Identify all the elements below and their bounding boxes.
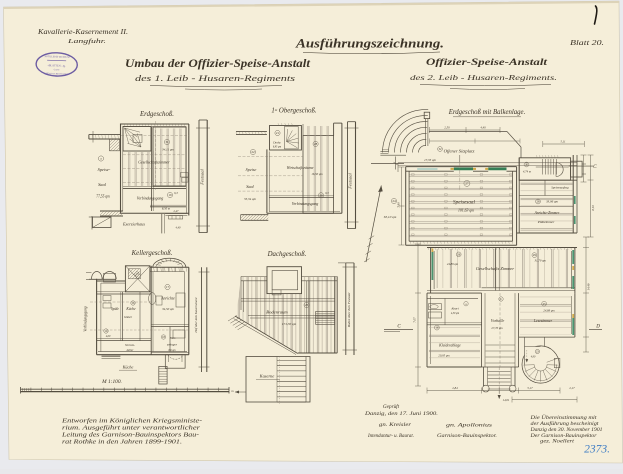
svg-text:Vorrats-: Vorrats- (125, 343, 135, 347)
svg-text:19: 19 (168, 193, 172, 197)
svg-text:20: 20 (319, 193, 323, 197)
svg-text:Blatt 20.: Blatt 20. (570, 38, 604, 47)
svg-text:Umbau der Offizier-Speise-Anst: Umbau der Offizier-Speise-Anstalt (125, 58, 311, 70)
svg-text:31: 31 (165, 140, 169, 144)
svg-text:Gesellschafts Zimmer: Gesellschafts Zimmer (476, 266, 514, 271)
svg-text:Verbindungsgang: Verbindungsgang (84, 306, 88, 331)
svg-text:keller: keller (127, 348, 135, 352)
svg-text:Intendantur- u. Baurat.: Intendantur- u. Baurat. (367, 434, 414, 439)
svg-text:rium. Ausgeführt unter verant: rium. Ausgeführt unter verantwortlicher (62, 425, 201, 432)
svg-text:des 2. Leib - Husaren-Regime: des 2. Leib - Husaren-Regiments. (410, 73, 557, 82)
svg-text:26: 26 (457, 253, 461, 257)
svg-text:Danzig, den 17. Juni 1900.: Danzig, den 17. Juni 1900. (364, 411, 438, 417)
svg-text:•BLATTEN– Jg.: •BLATTEN– Jg. (48, 64, 66, 68)
svg-text:Anrichte: Anrichte (160, 296, 175, 301)
svg-text:Hof über dem Kasernement: Hof über dem Kasernement (194, 297, 198, 333)
svg-text:27: 27 (465, 182, 469, 186)
svg-text:21: 21 (276, 131, 280, 135)
svg-text:D: D (595, 325, 600, 330)
svg-text:28: 28 (537, 200, 541, 204)
svg-text:1te Obergeschoß.: 1te Obergeschoß. (271, 108, 317, 115)
svg-text:Festsaal: Festsaal (348, 172, 353, 189)
svg-text:32: 32 (439, 147, 443, 151)
svg-text:Exerzierhaus: Exerzierhaus (122, 222, 145, 227)
svg-text:des 1. Leib - Husaren-Regime: des 1. Leib - Husaren-Regiments (135, 73, 296, 83)
svg-text:6,3: 6,3 (174, 192, 178, 195)
svg-text:29: 29 (533, 253, 537, 257)
svg-text:Dachgeschoß.: Dachgeschoß. (267, 251, 307, 258)
svg-text:2,47: 2,47 (174, 210, 179, 213)
svg-text:Kaserne: Kaserne (259, 374, 275, 379)
svg-text:Saal: Saal (246, 184, 254, 189)
svg-text:Erdgeschoß.: Erdgeschoß. (139, 111, 174, 118)
svg-text:Bodenraum: Bodenraum (266, 310, 288, 315)
svg-text:Spüle: Spüle (111, 307, 119, 311)
svg-text:25: 25 (543, 302, 547, 306)
svg-text:Festsaal: Festsaal (199, 168, 204, 185)
svg-text:Gläser: Gläser (124, 315, 133, 319)
svg-text:Erdgeschoß mit Balkenlage.: Erdgeschoß mit Balkenlage. (448, 109, 526, 116)
svg-text:Speise-: Speise- (98, 167, 111, 172)
svg-text:Offizier-Speise-Anstalt: Offizier-Speise-Anstalt (426, 57, 547, 68)
svg-text:Die Übereinstimmung mit: Die Übereinstimmung mit (529, 413, 597, 421)
svg-text:Geprüft: Geprüft (383, 403, 400, 410)
svg-text:22: 22 (251, 150, 255, 154)
svg-text:Kleiderablage: Kleiderablage (438, 344, 461, 348)
svg-text:28: 28 (314, 142, 318, 146)
svg-text:Garnison-Bauinspektor.: Garnison-Bauinspektor. (437, 434, 497, 439)
svg-text:M 1:100.: M 1:100. (101, 379, 122, 385)
svg-text:30: 30 (525, 163, 529, 167)
svg-text:Ausführungszeichnung.: Ausführungszeichnung. (295, 37, 444, 51)
svg-text:Küche: Küche (125, 307, 136, 311)
svg-text:Kavallerie-Kasernement II.: Kavallerie-Kasernement II. (37, 29, 129, 36)
svg-text:Verbindungsgang: Verbindungsgang (292, 202, 319, 206)
svg-text:zwinger: zwinger (166, 343, 178, 347)
svg-text:Plättzimmer: Plättzimmer (537, 220, 555, 224)
svg-text:Boden über dem Festsaal: Boden über dem Festsaal (347, 293, 351, 328)
svg-text:17: 17 (166, 285, 170, 289)
svg-text:Speise: Speise (246, 167, 257, 172)
svg-text:23: 23 (305, 303, 309, 307)
svg-text:Lesezimmer: Lesezimmer (533, 319, 553, 323)
svg-text:Langfuhr.: Langfuhr. (67, 38, 107, 45)
svg-text:rat Rothke in den Jahren 1899-: rat Rothke in den Jahren 1899-1901. (62, 440, 182, 446)
svg-text:Decke: Decke (272, 141, 281, 145)
svg-text:24: 24 (392, 199, 396, 203)
svg-text:4,50 qm: 4,50 qm (451, 312, 459, 315)
svg-text:Küche: Küche (122, 365, 134, 370)
svg-text:C: C (593, 164, 597, 170)
svg-text:2373.: 2373. (584, 444, 610, 456)
svg-text:Verbindungsgang: Verbindungsgang (137, 197, 164, 201)
svg-text:Speisesaal: Speisesaal (453, 200, 475, 206)
svg-text:Wirtschaftsräume: Wirtschaftsräume (287, 166, 314, 170)
svg-text:Saal: Saal (98, 182, 107, 187)
svg-text:Anrichte-Zimmer: Anrichte-Zimmer (534, 211, 560, 215)
svg-text:gn. Apollonius: gn. Apollonius (446, 423, 492, 429)
svg-text:16: 16 (435, 326, 439, 330)
svg-text:Speisenaufzug: Speisenaufzug (551, 186, 569, 190)
svg-text:6,95 qm: 6,95 qm (273, 146, 281, 149)
svg-text:Leitung des Garnison-Bauinspek: Leitung des Garnison-Bauinspektors Bau- (61, 433, 199, 439)
svg-text:Abort: Abort (450, 307, 458, 311)
svg-text:Entworfen im Königlichen Krieg: Entworfen im Königlichen Kriegsministe- (61, 418, 202, 425)
svg-text:gez. Noellert: gez. Noellert (540, 439, 575, 445)
svg-text:Offener Sitzplatz: Offener Sitzplatz (444, 149, 475, 154)
svg-text:4,40: 4,40 (176, 227, 181, 230)
svg-text:4,60: 4,60 (106, 335, 111, 338)
svg-text:gn. Kreisler: gn. Kreisler (379, 422, 412, 428)
svg-text:4,90: 4,90 (531, 356, 536, 359)
svg-text:der Ausführung bescheinigt: der Ausführung bescheinigt (531, 420, 600, 427)
svg-text:Kellergeschoß.: Kellergeschoß. (131, 250, 173, 257)
svg-text:~2373~: ~2373~ (53, 69, 61, 71)
svg-text:Bier-: Bier- (170, 336, 177, 340)
svg-text:Gesellschaftszimmer: Gesellschaftszimmer (138, 161, 170, 165)
svg-text:8,6 qm: 8,6 qm (168, 349, 175, 352)
svg-text:Vorhalle: Vorhalle (491, 318, 505, 323)
